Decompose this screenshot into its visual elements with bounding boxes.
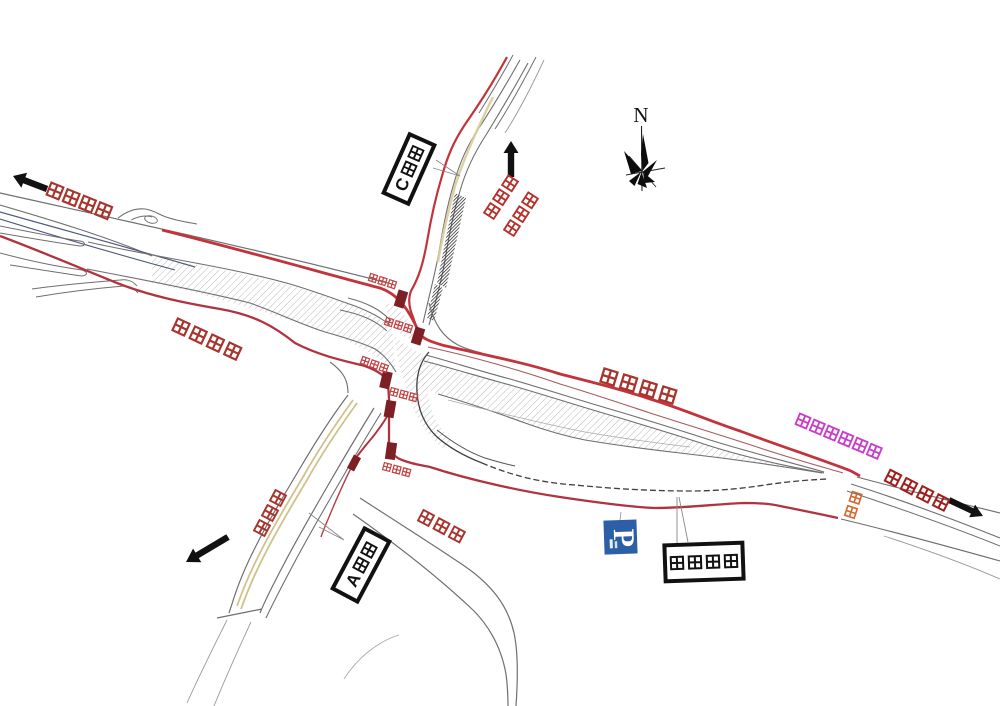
svg-text:N: N xyxy=(633,103,648,127)
